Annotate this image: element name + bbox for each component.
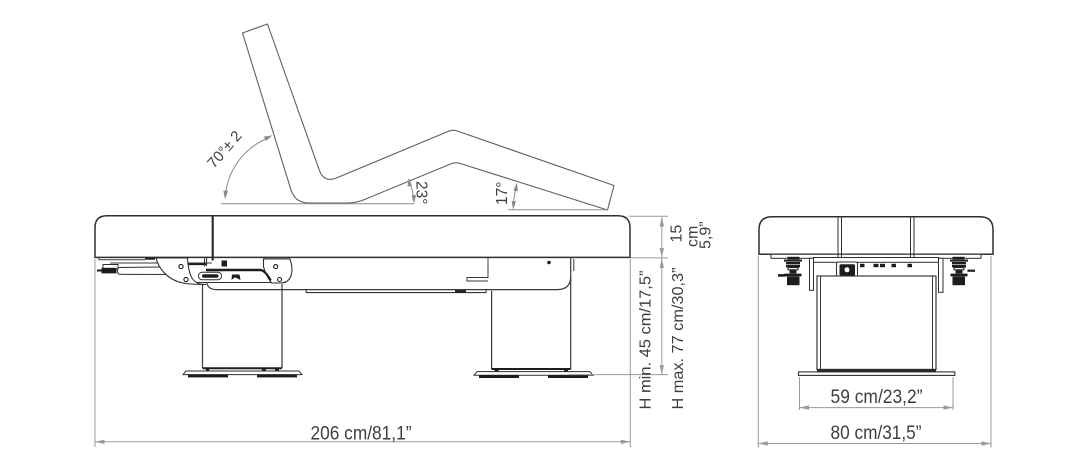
svg-text:206 cm/81,1”: 206 cm/81,1” <box>311 423 412 445</box>
svg-text:59 cm/23,2”: 59 cm/23,2” <box>831 386 923 408</box>
svg-text:23°: 23° <box>413 181 430 204</box>
svg-text:15: 15 <box>669 225 686 243</box>
svg-text:17°: 17° <box>494 182 511 205</box>
svg-text:H min. 45 cm/17,5”: H min. 45 cm/17,5” <box>638 271 655 410</box>
svg-text:5,9”: 5,9” <box>698 221 715 249</box>
svg-text:80 cm/31,5”: 80 cm/31,5” <box>831 422 922 444</box>
svg-text:H max. 77 cm/30,3”: H max. 77 cm/30,3” <box>670 268 687 410</box>
